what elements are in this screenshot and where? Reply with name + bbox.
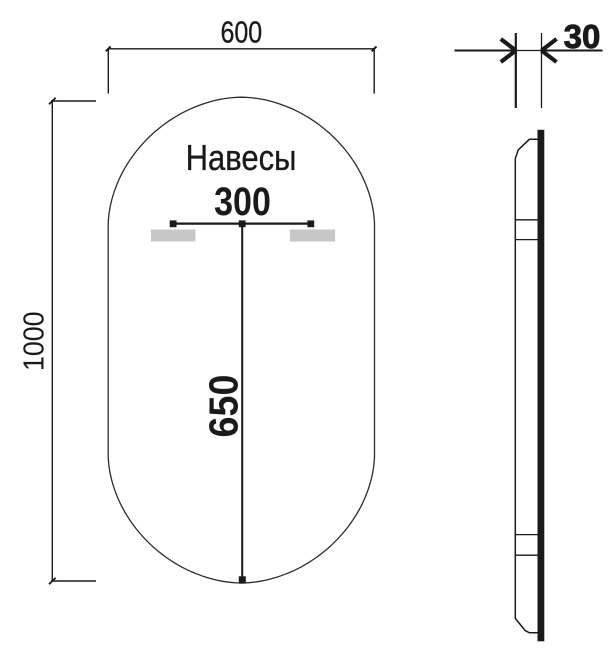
- svg-text:300: 300: [214, 178, 271, 223]
- svg-text:Навесы: Навесы: [186, 138, 297, 179]
- svg-text:650: 650: [201, 375, 247, 438]
- svg-text:600: 600: [220, 15, 262, 49]
- svg-text:1000: 1000: [18, 311, 50, 371]
- svg-text:30: 30: [564, 18, 601, 55]
